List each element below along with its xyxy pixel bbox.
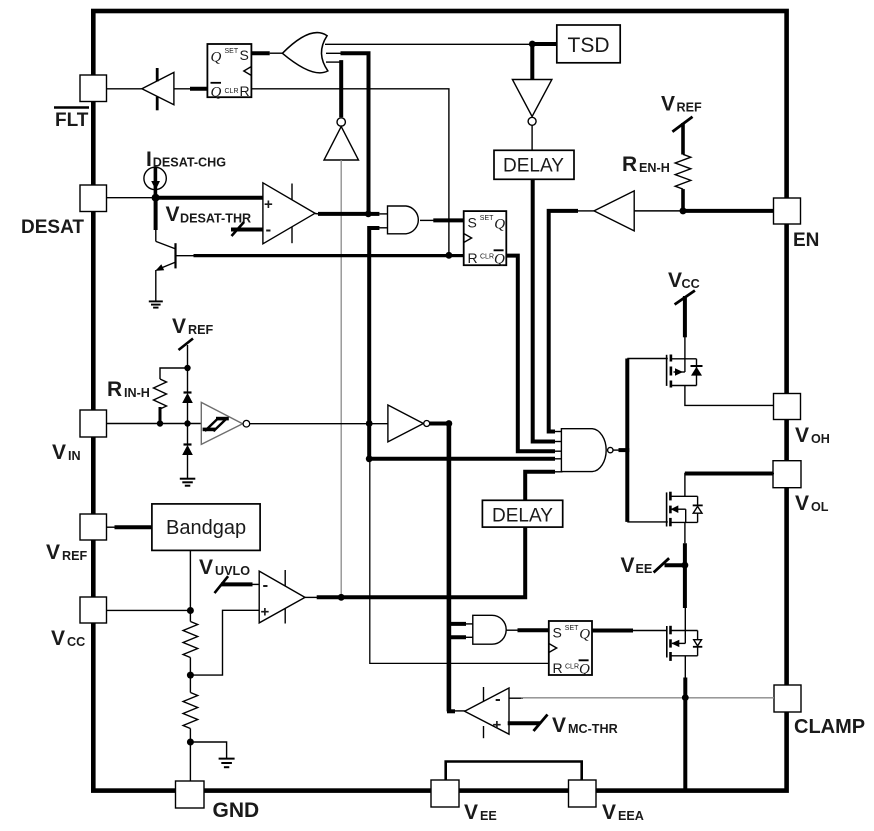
svg-text:GND: GND (213, 799, 260, 822)
svg-text:SET: SET (565, 625, 579, 632)
svg-text:+: + (493, 717, 502, 734)
svg-text:CC: CC (682, 277, 700, 291)
svg-text:R: R (622, 153, 637, 176)
svg-text:TSD: TSD (568, 34, 610, 57)
svg-text:V: V (172, 315, 186, 338)
svg-text:EN-H: EN-H (639, 161, 670, 175)
svg-text:R: R (553, 660, 563, 676)
svg-text:DELAY: DELAY (503, 156, 564, 177)
svg-text:V: V (52, 441, 66, 464)
svg-text:Q: Q (579, 662, 590, 678)
svg-text:SET: SET (480, 215, 494, 222)
svg-text:Q: Q (494, 252, 505, 268)
svg-text:Q: Q (579, 626, 590, 642)
svg-text:CLR: CLR (480, 254, 494, 261)
svg-text:V: V (661, 93, 675, 116)
svg-text:R: R (468, 250, 478, 266)
svg-text:+: + (264, 196, 273, 213)
svg-text:V: V (199, 556, 213, 579)
svg-text:V: V (795, 424, 809, 447)
svg-text:V: V (51, 627, 65, 650)
svg-text:IN-H: IN-H (124, 386, 150, 400)
svg-text:IN: IN (68, 449, 81, 463)
svg-text:REF: REF (677, 101, 702, 115)
svg-text:Bandgap: Bandgap (166, 517, 246, 539)
svg-text:-: - (266, 220, 272, 239)
svg-text:-: - (263, 576, 269, 595)
svg-text:OH: OH (811, 432, 830, 446)
svg-text:OL: OL (811, 500, 829, 514)
svg-text:EE: EE (480, 809, 497, 823)
svg-text:MC-THR: MC-THR (568, 722, 618, 736)
svg-text:S: S (553, 625, 562, 641)
svg-text:Q: Q (211, 50, 222, 66)
svg-text:DESAT-THR: DESAT-THR (180, 212, 251, 226)
svg-text:DESAT: DESAT (21, 217, 84, 238)
svg-text:EE: EE (636, 562, 653, 576)
svg-text:DESAT-CHG: DESAT-CHG (153, 156, 226, 170)
svg-text:S: S (240, 47, 249, 63)
svg-text:R: R (107, 378, 122, 401)
svg-text:V: V (795, 492, 809, 515)
svg-text:SET: SET (225, 48, 239, 55)
svg-text:FLT: FLT (55, 110, 89, 131)
svg-text:V: V (166, 203, 180, 226)
svg-text:Q: Q (211, 85, 222, 101)
svg-text:REF: REF (188, 323, 213, 337)
svg-text:R: R (240, 83, 250, 99)
svg-text:EEA: EEA (618, 809, 644, 823)
svg-text:CLR: CLR (565, 664, 579, 671)
svg-text:V: V (464, 801, 478, 824)
svg-text:V: V (46, 541, 60, 564)
svg-text:UVLO: UVLO (215, 564, 250, 578)
svg-text:-: - (495, 690, 501, 709)
svg-text:V: V (668, 269, 682, 292)
svg-text:CLR: CLR (225, 88, 239, 95)
svg-text:V: V (552, 714, 566, 737)
svg-text:+: + (261, 604, 270, 621)
svg-text:EN: EN (793, 230, 819, 251)
svg-text:V: V (621, 554, 635, 577)
svg-text:S: S (468, 215, 477, 231)
svg-text:REF: REF (62, 549, 87, 563)
svg-text:V: V (602, 801, 616, 824)
svg-text:Q: Q (494, 216, 505, 232)
svg-text:CLAMP: CLAMP (794, 716, 865, 738)
svg-text:DELAY: DELAY (492, 506, 553, 527)
svg-text:CC: CC (67, 635, 85, 649)
